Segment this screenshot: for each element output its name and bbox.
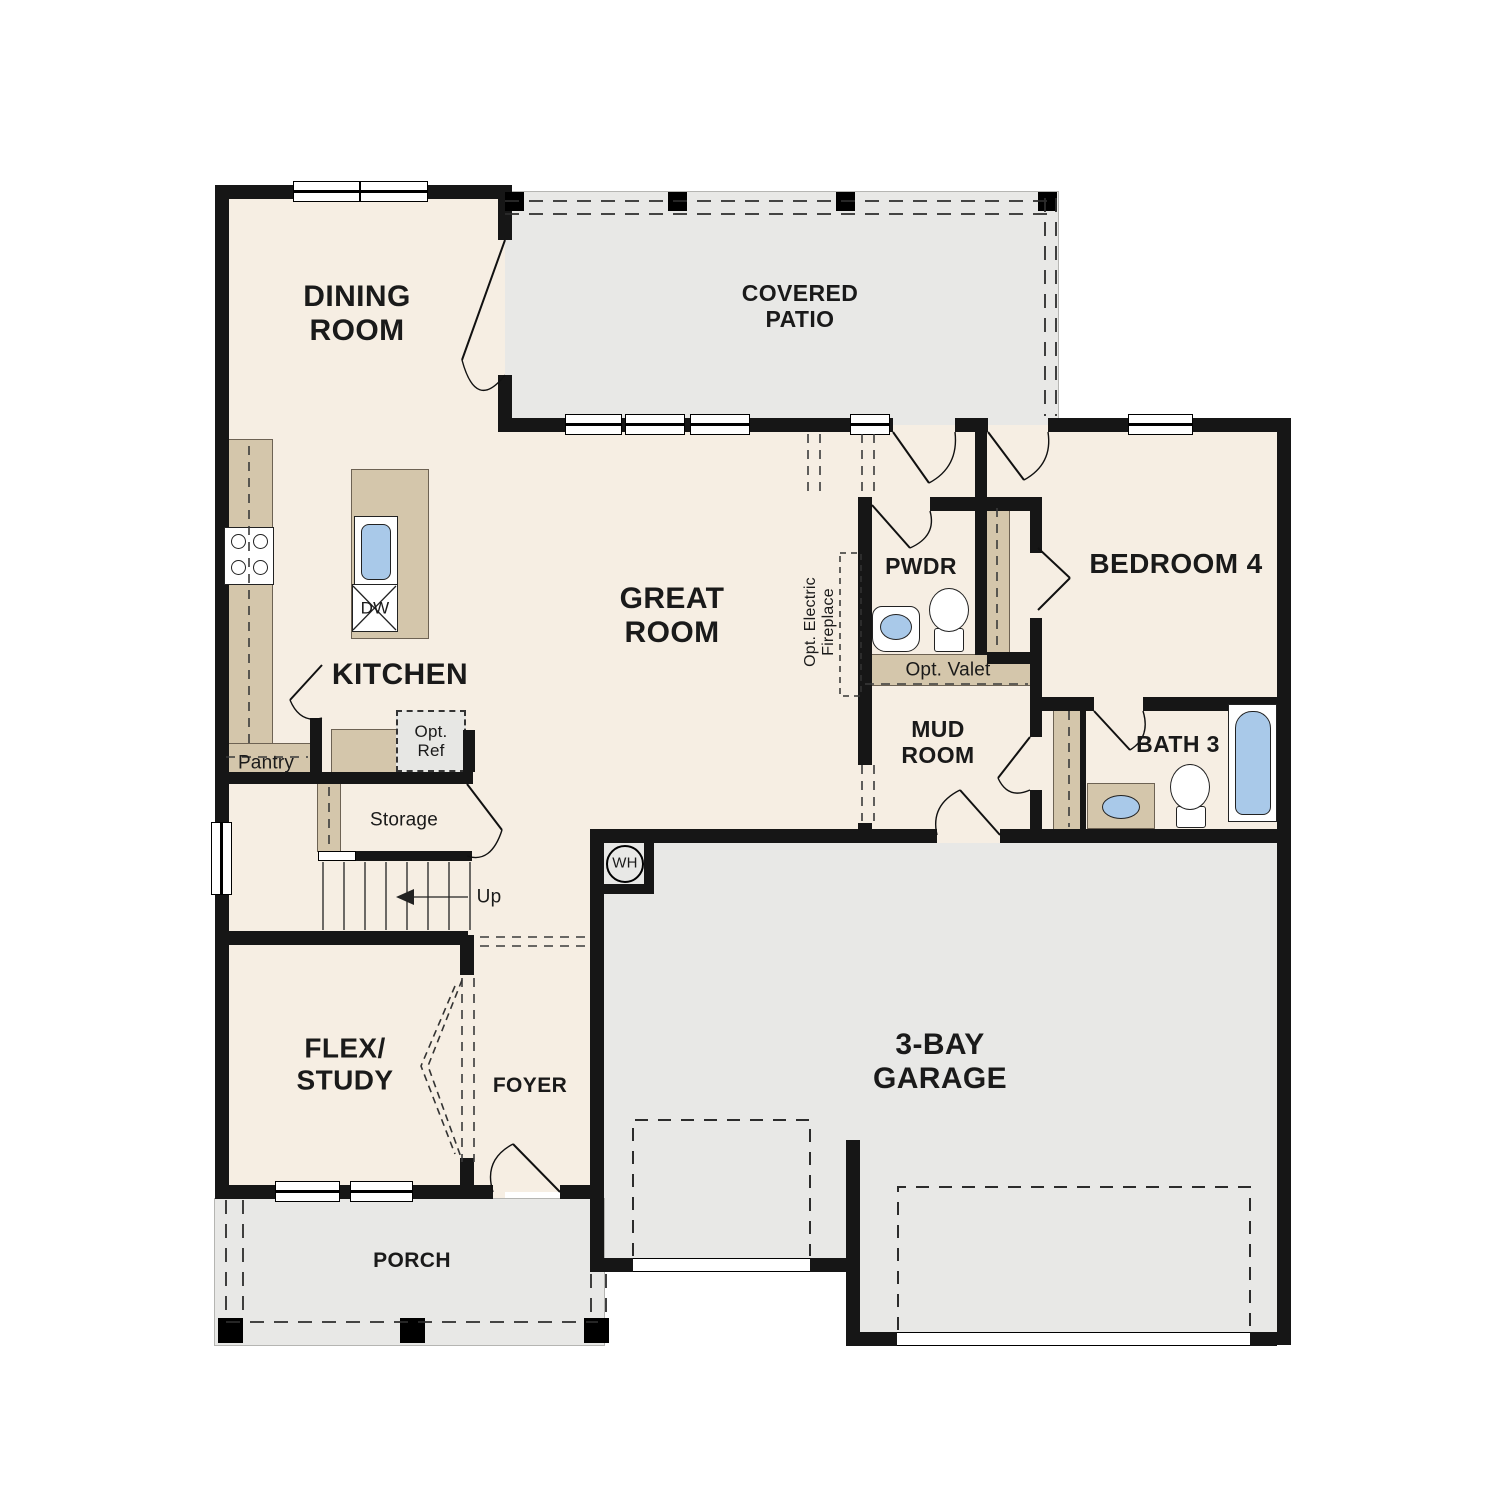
bath3-tub xyxy=(1235,711,1271,815)
linen-closet-shelf xyxy=(1054,708,1080,830)
patio-post-4 xyxy=(1038,192,1057,211)
window-hall xyxy=(850,414,890,435)
foyer-hall-floor xyxy=(505,842,590,1192)
wall-foyer-stub-top xyxy=(460,935,474,975)
annotation-up: Up xyxy=(477,886,502,907)
annotation-pantry: Pantry xyxy=(238,752,294,773)
wall-mud-right-b xyxy=(1030,790,1042,843)
room-label-great: GREAT ROOM xyxy=(620,582,725,650)
window-dining-2 xyxy=(360,181,428,202)
wall-bath3-left xyxy=(1080,708,1086,833)
wall-wh-right xyxy=(644,842,654,888)
room-label-dining: DINING ROOM xyxy=(303,280,410,348)
porch-post-3 xyxy=(584,1318,609,1343)
wall-patio-house-c xyxy=(1048,418,1058,432)
wall-right-exterior xyxy=(1277,418,1291,1345)
pwdr-toilet-bowl xyxy=(929,588,969,632)
wall-foyer-stub-bottom xyxy=(460,1158,474,1189)
burner-4 xyxy=(253,560,268,575)
room-label-flex: FLEX/ STUDY xyxy=(297,1032,394,1095)
kitchen-counter xyxy=(226,440,272,750)
annotation-storage: Storage xyxy=(370,809,438,830)
window-stairhall xyxy=(211,822,232,895)
window-greatroom-1 xyxy=(565,414,622,435)
wall-pwdr-right xyxy=(975,511,987,655)
porch-post-1 xyxy=(218,1318,243,1343)
window-greatroom-3 xyxy=(690,414,750,435)
annotation-opt-valet: Opt. Valet xyxy=(905,659,990,680)
annotation-opt-ref: Opt. Ref xyxy=(415,722,448,760)
wall-pwdr-left xyxy=(858,497,872,765)
wall-pwdr-top xyxy=(930,497,1042,511)
window-flex-1 xyxy=(275,1181,340,1202)
room-label-bedroom4: BEDROOM 4 xyxy=(1089,548,1262,580)
ref-counter xyxy=(332,730,398,772)
room-label-patio: COVERED PATIO xyxy=(742,280,859,332)
bath3-toilet-bowl xyxy=(1170,764,1210,810)
burner-2 xyxy=(253,534,268,549)
room-label-bath3: BATH 3 xyxy=(1136,731,1220,757)
patio-post-2 xyxy=(668,192,687,211)
wall-flex-top xyxy=(215,931,468,945)
room-label-foyer: FOYER xyxy=(493,1074,567,1098)
cooktop xyxy=(224,527,274,585)
wall-garage-top-a xyxy=(590,829,937,843)
room-label-garage: 3-BAY GARAGE xyxy=(873,1028,1007,1096)
annotation-dw: DW xyxy=(361,598,390,617)
wall-mud-left-stub xyxy=(858,823,872,843)
garage-door-single xyxy=(633,1258,810,1272)
room-label-mud: MUD ROOM xyxy=(901,716,974,768)
mud-garage-doorway xyxy=(937,829,1000,843)
garage-door-double xyxy=(897,1332,1250,1346)
window-greatroom-2 xyxy=(625,414,685,435)
wall-hall-bedroom xyxy=(975,432,987,497)
pwdr-sink xyxy=(880,614,912,640)
porch-post-2 xyxy=(400,1318,425,1343)
wall-mud-right-a xyxy=(1030,655,1042,737)
wall-garage-jog xyxy=(846,1140,860,1346)
wall-storage-bottom xyxy=(352,851,472,861)
island-sink xyxy=(361,524,391,580)
stair-landing xyxy=(318,851,356,861)
bedroom-closet-shelf xyxy=(987,505,1009,652)
wall-patio-house-b xyxy=(955,418,988,432)
patio-post-1 xyxy=(505,192,524,211)
wall-closet-stub-top xyxy=(1030,505,1042,553)
window-bedroom4 xyxy=(1128,414,1193,435)
wall-kitchen-bottom xyxy=(215,772,473,784)
patio-post-3 xyxy=(836,192,855,211)
wall-ref-right xyxy=(463,730,475,772)
window-dining-1 xyxy=(293,181,360,202)
room-label-pwdr: PWDR xyxy=(885,553,957,579)
wall-pantry-right xyxy=(310,718,322,774)
annotation-opt-fireplace: Opt. Electric Fireplace xyxy=(802,577,838,667)
annotation-wh: WH xyxy=(612,856,637,873)
stair-rail xyxy=(318,784,340,851)
room-label-kitchen: KITCHEN xyxy=(332,658,468,692)
burner-1 xyxy=(231,534,246,549)
window-flex-2 xyxy=(350,1181,413,1202)
room-label-porch: PORCH xyxy=(373,1249,451,1273)
wall-garage-left xyxy=(590,842,604,1272)
burner-3 xyxy=(231,560,246,575)
wall-foyer-front-b xyxy=(560,1185,604,1199)
wall-left-exterior xyxy=(215,185,229,1199)
floor-plan-canvas: DINING ROOM COVERED PATIO GREAT ROOM KIT… xyxy=(0,0,1500,1500)
bath3-sink xyxy=(1102,795,1140,819)
garage-setback-mask xyxy=(604,1272,846,1348)
